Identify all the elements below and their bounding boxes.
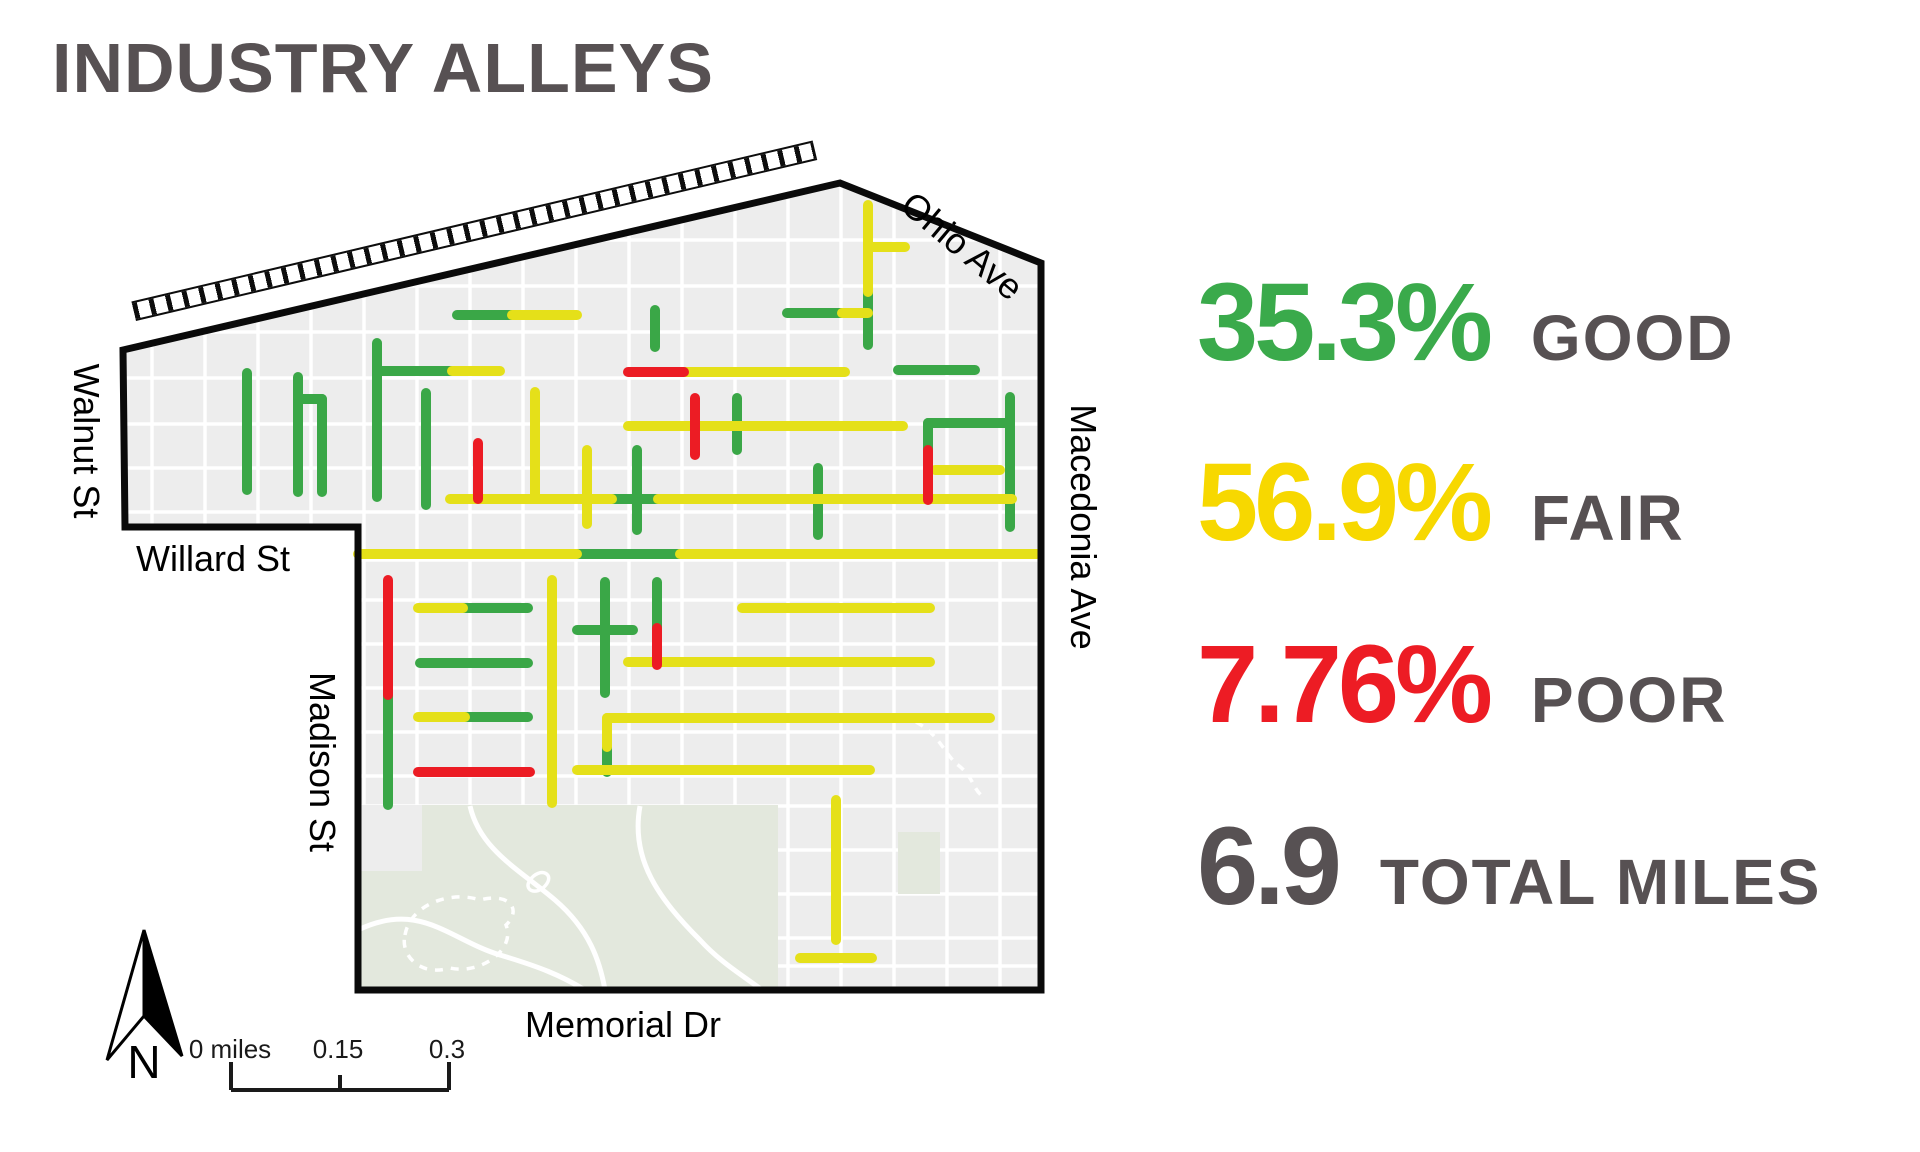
stat-value-fair: 56.9% xyxy=(1197,448,1489,558)
scale-label-zero: 0 miles xyxy=(189,1034,271,1065)
stat-row-total-miles: 6.9 TOTAL MILES xyxy=(1197,812,1821,922)
stat-label-poor: POOR xyxy=(1531,668,1727,732)
north-arrow-label: N xyxy=(127,1035,160,1089)
stat-row-poor: 7.76% POOR xyxy=(1197,630,1727,740)
scale-label-max: 0.3 xyxy=(429,1034,465,1065)
street-label-madison-st: Madison St xyxy=(301,672,343,852)
stat-value-total-miles: 6.9 xyxy=(1197,812,1338,922)
industry-alleys-infographic: INDUSTRY ALLEYS xyxy=(0,0,1920,1152)
street-label-willard-st: Willard St xyxy=(136,538,290,580)
stat-value-poor: 7.76% xyxy=(1197,630,1489,740)
stat-value-good: 35.3% xyxy=(1197,268,1489,378)
street-label-walnut-st: Walnut St xyxy=(65,364,107,519)
stat-row-fair: 56.9% FAIR xyxy=(1197,448,1685,558)
stat-label-good: GOOD xyxy=(1531,306,1735,370)
street-label-memorial-dr: Memorial Dr xyxy=(525,1004,721,1046)
stat-label-fair: FAIR xyxy=(1531,486,1685,550)
scale-label-mid: 0.15 xyxy=(313,1034,364,1065)
street-label-macedonia-ave: Macedonia Ave xyxy=(1062,404,1104,650)
stat-row-good: 35.3% GOOD xyxy=(1197,268,1734,378)
scale-bar xyxy=(231,1062,449,1090)
stat-label-total-miles: TOTAL MILES xyxy=(1380,850,1822,914)
